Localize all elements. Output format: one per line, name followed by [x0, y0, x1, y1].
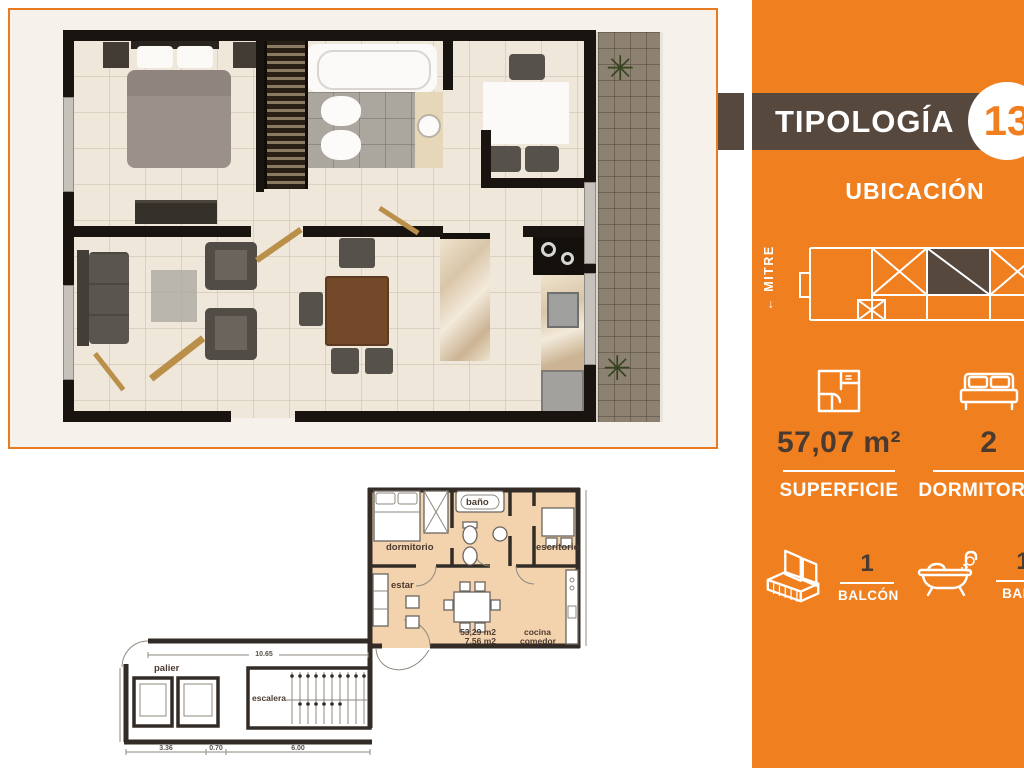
desk-chair-bottom-left: [487, 146, 521, 172]
washbasin: [417, 114, 441, 138]
bed-pillow-right: [177, 46, 213, 68]
bed-pillow-left: [137, 46, 173, 68]
balcony-icon: [762, 546, 826, 606]
stove-burner-2: [561, 252, 574, 265]
window-right-study: [584, 182, 596, 264]
desk-2d: [542, 508, 574, 536]
label-escritorio: escritorio: [536, 542, 579, 553]
table-chair-2d-e: [444, 600, 453, 610]
location-diagram: [795, 240, 1024, 335]
bano-divider: [996, 580, 1024, 582]
desk-chair-bottom-right: [525, 146, 559, 172]
floorplan-icon: [816, 368, 862, 414]
floorplan-2d: 10.65 3.36 0.70 6.00 dormitorio baño esc…: [118, 478, 598, 768]
dim-3: 6.00: [291, 745, 305, 752]
wall-bath-right: [443, 30, 453, 90]
curved-balcony-outline: [376, 649, 429, 670]
plant-top: ✳: [606, 52, 635, 86]
location-heading: UBICACIÓN: [752, 178, 1024, 205]
dining-table: [325, 276, 389, 346]
banner-notch: [744, 93, 752, 150]
elevator-2-cab: [184, 684, 212, 716]
stat-superficie: 57,07 m² SUPERFICIE: [768, 364, 910, 502]
stair-treads: [286, 672, 368, 724]
dining-chair-top: [339, 238, 375, 268]
kitchen-sink: [547, 292, 579, 328]
wall-bottom-right: [295, 411, 596, 422]
rug: [151, 270, 197, 322]
elevator-1-cab: [140, 684, 166, 716]
stove-burner-1: [541, 242, 556, 257]
dormitorios-label: DORMITORIOS: [918, 480, 1024, 502]
bano-value: 1: [994, 548, 1024, 576]
stair-balusters: [290, 674, 366, 706]
dining-chair-left: [299, 292, 323, 326]
label-area-semi: 7,56 m2: [465, 636, 496, 646]
typology-title: TIPOLOGÍA: [775, 104, 955, 140]
bathtub-inner: [317, 50, 431, 90]
building-outline: [810, 248, 1024, 320]
bed-duvet: [127, 70, 231, 168]
bathtub-icon: [916, 546, 982, 602]
balcon-value: 1: [838, 550, 896, 578]
label-cocina-2: comedor: [520, 636, 557, 646]
window-left-living: [63, 285, 74, 380]
table-chair-2d-f: [491, 600, 500, 610]
dim-2: 0.70: [209, 745, 223, 752]
dormitorios-value: 2: [918, 426, 1024, 460]
dormitorios-divider: [933, 470, 1024, 472]
chair-2d-a: [406, 596, 419, 608]
sofa-2d: [373, 574, 388, 626]
plant-bottom: ✳: [603, 352, 632, 386]
label-palier: palier: [154, 663, 180, 674]
sofa-back: [77, 250, 89, 346]
label-estar: estar: [391, 580, 414, 591]
basin-2d: [493, 527, 507, 541]
bidet-2d: [463, 547, 477, 565]
bano-label: BAÑO: [994, 586, 1024, 601]
wall-mid-left: [63, 226, 251, 237]
dresser: [135, 200, 217, 224]
dining-chair-bottom-1: [331, 348, 359, 374]
render-frame: ✳ ✳: [8, 8, 718, 449]
chair-2d-b: [406, 616, 419, 628]
wall-mid-right: [303, 226, 443, 237]
closet: [264, 41, 308, 189]
armchair-2-seat: [215, 316, 247, 350]
label-escalera: escalera: [252, 693, 286, 703]
toilet: [321, 96, 361, 126]
dim-1: 3.36: [159, 745, 173, 752]
window-left-bedroom: [63, 97, 74, 192]
superficie-value: 57,07 m²: [768, 426, 910, 460]
street-label: ← MITRE: [762, 230, 778, 326]
stat-balcon: 1 BALCÓN: [762, 546, 896, 606]
nightstand-left: [103, 42, 129, 68]
stove-counter: [533, 237, 584, 275]
stat-dormitorios: 2 DORMITORIOS: [918, 364, 1024, 502]
kitchen-island: [440, 233, 490, 361]
table-chair-2d-b: [475, 582, 485, 591]
dining-chair-bottom-2: [365, 348, 393, 374]
building-notch: [800, 273, 810, 297]
wall-bottom-left: [63, 411, 231, 422]
stat-bano: 1 BAÑO: [916, 546, 1024, 602]
label-bano: baño: [466, 497, 489, 508]
wall-top: [63, 30, 596, 41]
label-dormitorio: dormitorio: [386, 542, 434, 553]
window-right-kitchen: [584, 273, 596, 365]
floorplan-3d-render: ✳ ✳: [63, 30, 660, 427]
corridor-entry-arc: [122, 641, 148, 667]
desk: [483, 82, 569, 144]
balcon-divider: [840, 582, 894, 584]
superficie-divider: [783, 470, 895, 472]
toilet-2d: [463, 526, 477, 544]
armchair-1-seat: [215, 250, 247, 280]
superficie-label: SUPERFICIE: [768, 480, 910, 502]
wall-study-bottom: [481, 178, 584, 188]
balcon-label: BALCÓN: [838, 588, 896, 603]
bed-icon: [958, 368, 1020, 414]
sofa-seat: [89, 252, 129, 344]
dim-total: 10.65: [255, 651, 273, 658]
bed-2d: [374, 491, 420, 541]
unit-number: 13: [984, 97, 1024, 145]
bidet: [321, 130, 361, 160]
table-2d: [454, 592, 490, 622]
table-chair-2d-a: [460, 582, 470, 591]
desk-chair-top: [509, 54, 545, 80]
wall-closet-left: [256, 30, 264, 192]
